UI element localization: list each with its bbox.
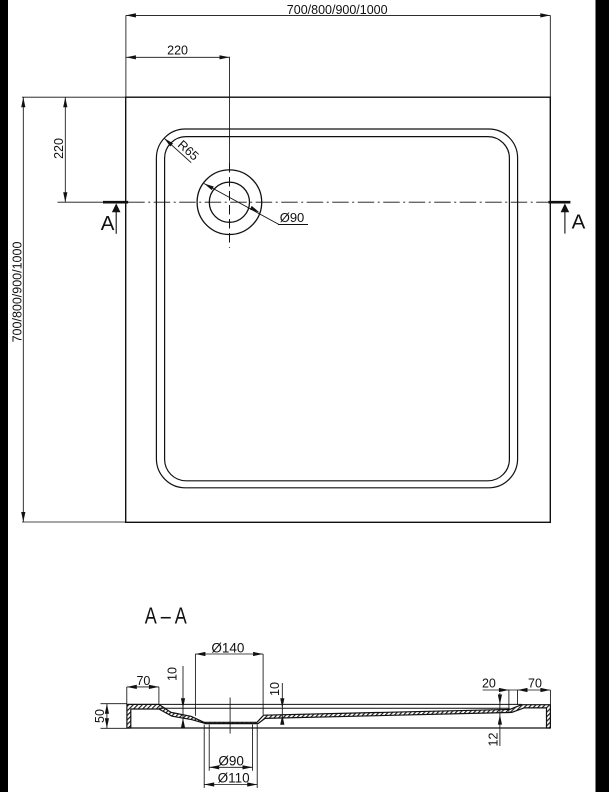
- svg-text:A: A: [101, 212, 115, 235]
- svg-text:10: 10: [165, 667, 179, 681]
- svg-text:Ø90: Ø90: [218, 753, 244, 768]
- svg-text:700/800/900/1000: 700/800/900/1000: [10, 242, 24, 343]
- svg-text:70: 70: [528, 677, 542, 691]
- svg-text:220: 220: [167, 44, 188, 58]
- svg-text:Ø90: Ø90: [280, 210, 305, 225]
- svg-text:220: 220: [52, 138, 66, 159]
- svg-text:Ø140: Ø140: [211, 640, 244, 655]
- svg-text:12: 12: [486, 733, 500, 747]
- svg-text:A: A: [572, 211, 586, 234]
- svg-text:50: 50: [93, 709, 107, 723]
- svg-text:A – A: A – A: [145, 602, 188, 628]
- svg-text:700/800/900/1000: 700/800/900/1000: [287, 3, 388, 17]
- svg-text:Ø110: Ø110: [218, 771, 250, 786]
- svg-text:20: 20: [482, 677, 496, 691]
- svg-text:70: 70: [136, 674, 150, 688]
- svg-text:10: 10: [268, 682, 282, 696]
